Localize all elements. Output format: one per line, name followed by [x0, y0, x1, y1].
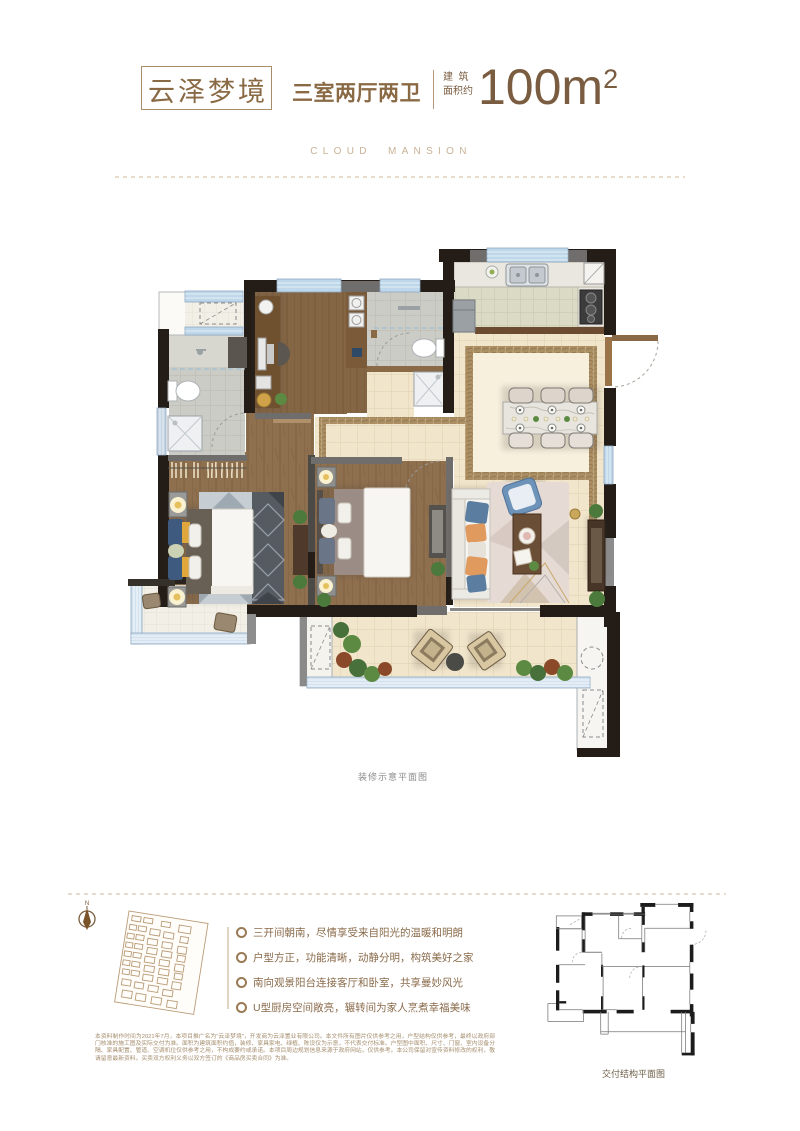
svg-text:N: N	[85, 901, 89, 907]
